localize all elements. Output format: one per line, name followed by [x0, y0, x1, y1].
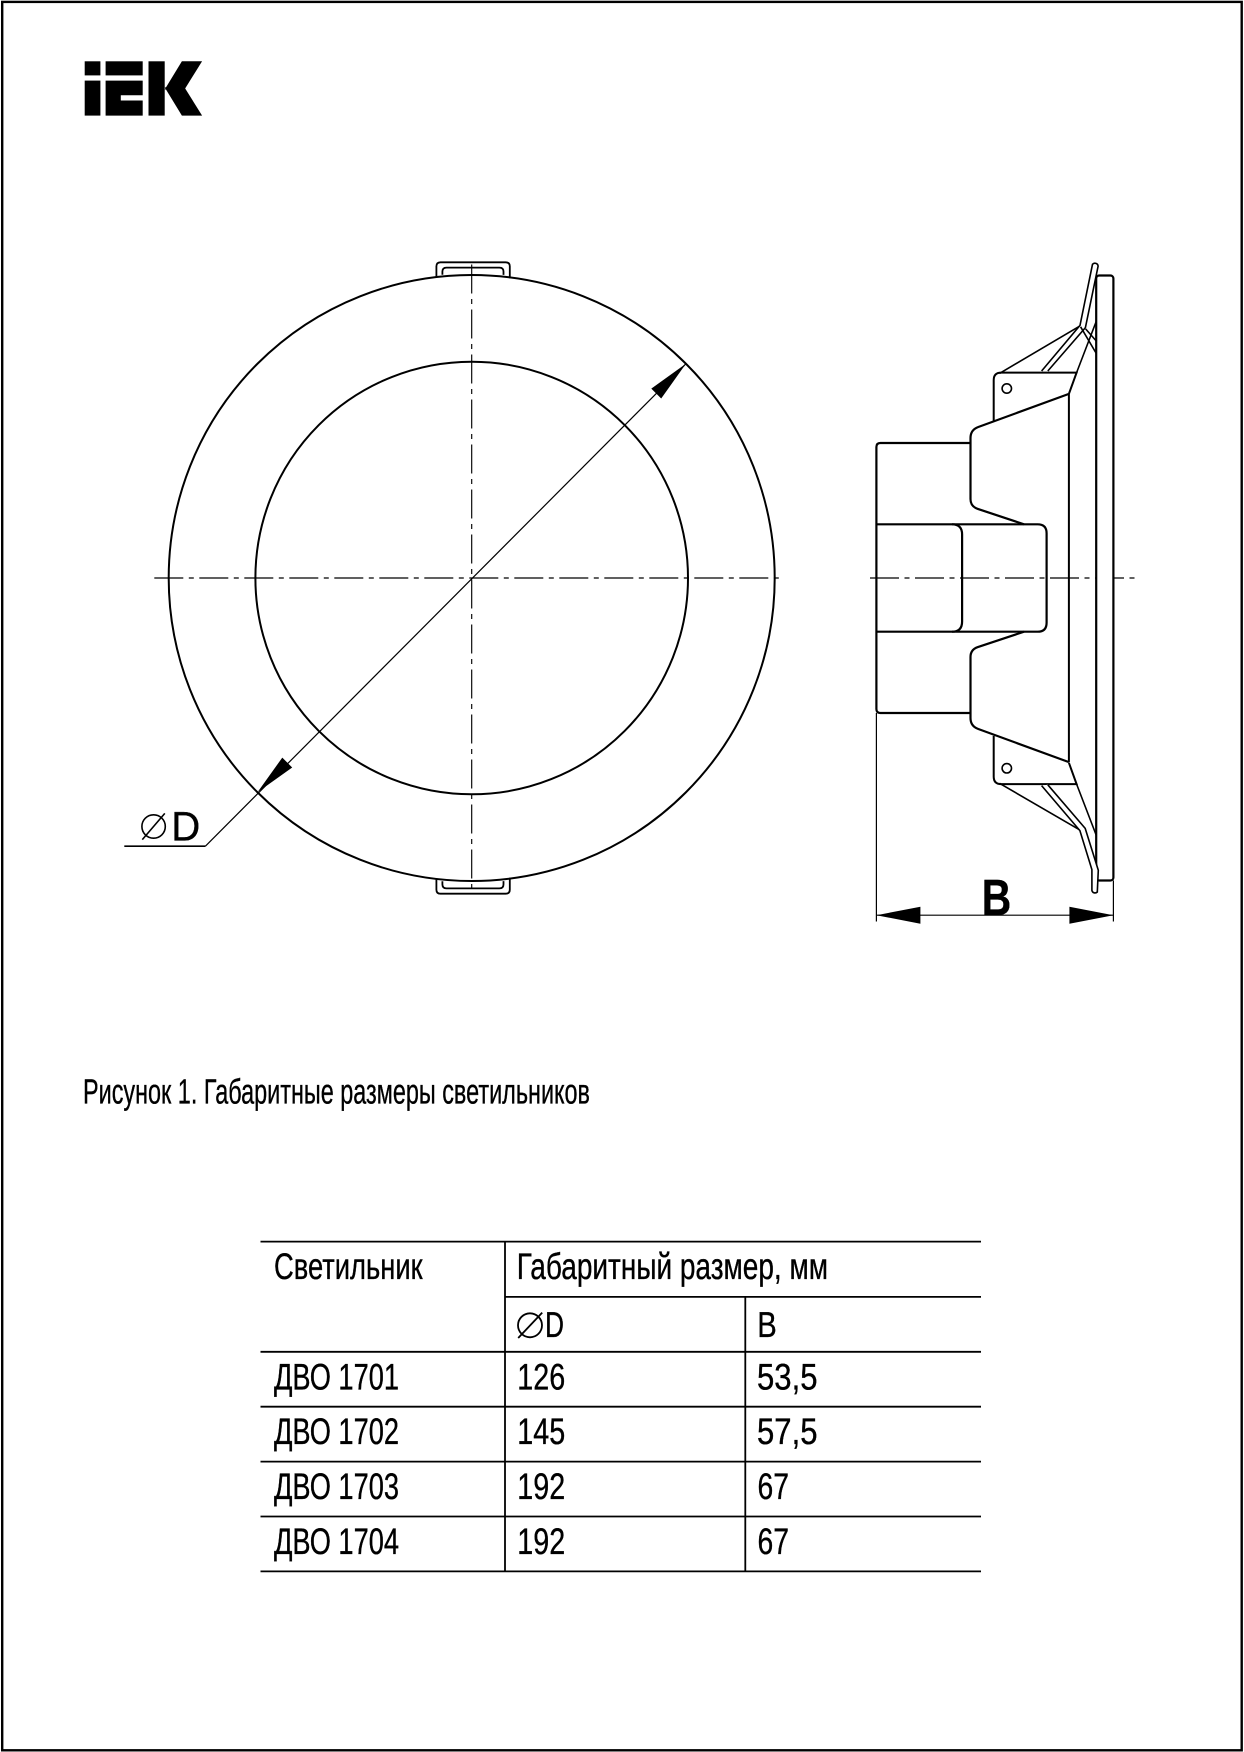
svg-text:ДВО 1701: ДВО 1701 [274, 1356, 399, 1397]
svg-text:126: 126 [517, 1356, 565, 1397]
svg-text:192: 192 [517, 1466, 565, 1507]
svg-text:Рисунок 1. Габаритные размеры: Рисунок 1. Габаритные размеры светильник… [83, 1072, 590, 1111]
svg-text:D: D [171, 804, 200, 850]
svg-text:ДВО 1703: ДВО 1703 [274, 1466, 399, 1507]
svg-text:57,5: 57,5 [757, 1411, 818, 1452]
svg-text:67: 67 [758, 1466, 790, 1507]
svg-text:53,5: 53,5 [757, 1356, 818, 1397]
svg-text:ДВО 1704: ДВО 1704 [274, 1521, 399, 1562]
svg-text:B: B [982, 869, 1012, 926]
svg-text:192: 192 [517, 1521, 565, 1562]
svg-text:В: В [757, 1304, 777, 1345]
svg-text:145: 145 [517, 1411, 565, 1452]
svg-text:Габаритный размер, мм: Габаритный размер, мм [517, 1246, 828, 1287]
svg-text:D: D [545, 1304, 564, 1345]
svg-text:ДВО 1702: ДВО 1702 [274, 1411, 399, 1452]
svg-text:Светильник: Светильник [274, 1246, 423, 1287]
svg-text:67: 67 [758, 1521, 790, 1562]
